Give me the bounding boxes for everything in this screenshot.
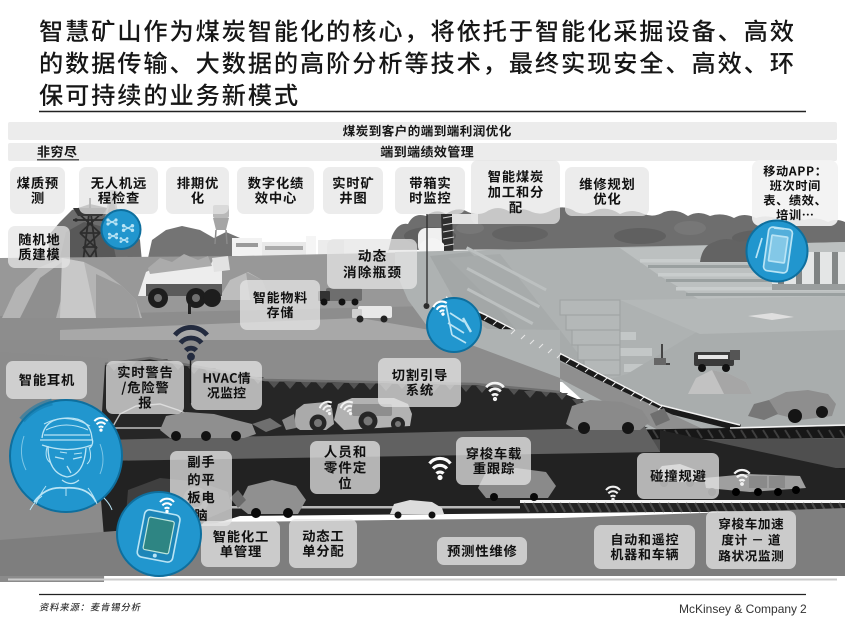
svg-text:2: 2 [800, 602, 807, 616]
svg-text:McKinsey & Company: McKinsey & Company [679, 602, 797, 616]
